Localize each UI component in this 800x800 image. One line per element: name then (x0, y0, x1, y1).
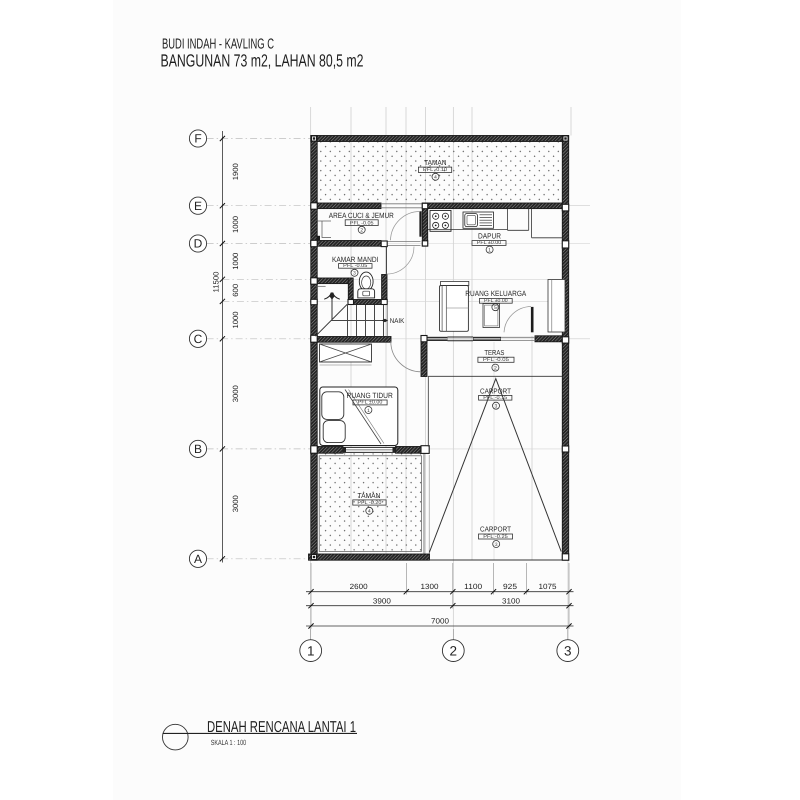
svg-text:RUANG KELUARGA: RUANG KELUARGA (465, 289, 527, 298)
svg-text:PFL ±0.00: PFL ±0.00 (484, 298, 508, 304)
svg-text:11500: 11500 (211, 272, 220, 293)
svg-text:C: C (194, 332, 203, 346)
svg-text:E: E (194, 199, 202, 213)
svg-text:3: 3 (564, 643, 572, 658)
svg-text:TERAS: TERAS (484, 348, 504, 357)
svg-text:PFL -0.10: PFL -0.10 (423, 167, 447, 173)
svg-text:A: A (194, 552, 202, 566)
svg-text:B: B (194, 442, 202, 456)
svg-text:PFL -0.05: PFL -0.05 (343, 263, 367, 269)
svg-text:3900: 3900 (373, 596, 391, 605)
svg-text:3: 3 (495, 542, 498, 548)
svg-text:PFL ±0.00: PFL ±0.00 (358, 400, 383, 406)
svg-text:1000: 1000 (231, 312, 240, 329)
svg-text:AREA CUCI & JEMUR: AREA CUCI & JEMUR (329, 211, 394, 220)
svg-text:600: 600 (231, 284, 240, 297)
svg-text:1900: 1900 (231, 163, 240, 180)
svg-text:3000: 3000 (231, 495, 240, 512)
svg-text:3: 3 (353, 271, 356, 277)
svg-text:2600: 2600 (350, 582, 368, 591)
svg-text:RUANG TIDUR: RUANG TIDUR (347, 391, 394, 400)
svg-text:925: 925 (503, 582, 517, 591)
svg-text:TAMAN: TAMAN (424, 158, 446, 167)
svg-text:3100: 3100 (502, 596, 520, 605)
svg-text:PFL ±0.00: PFL ±0.00 (477, 240, 502, 246)
svg-text:TAMAN: TAMAN (358, 491, 381, 500)
svg-text:2: 2 (494, 366, 497, 372)
svg-text:PFL -0.25: PFL -0.25 (483, 534, 508, 540)
svg-text:3: 3 (495, 404, 498, 410)
svg-text:1: 1 (307, 643, 315, 658)
svg-text:PFL -0.05: PFL -0.05 (350, 220, 374, 226)
svg-text:3000: 3000 (231, 385, 240, 402)
svg-text:1100: 1100 (464, 582, 482, 591)
svg-text:PFL -0.20: PFL -0.20 (357, 500, 381, 506)
svg-text:2: 2 (450, 643, 458, 658)
svg-text:1000: 1000 (231, 253, 240, 270)
svg-text:D: D (194, 237, 203, 251)
svg-text:BANGUNAN 73 m2, LAHAN 80,5 m2: BANGUNAN 73 m2, LAHAN 80,5 m2 (161, 50, 364, 70)
svg-text:1: 1 (488, 248, 491, 254)
svg-text:7000: 7000 (431, 617, 449, 626)
svg-text:4: 4 (368, 509, 371, 515)
svg-text:1300: 1300 (421, 582, 439, 591)
svg-text:1: 1 (367, 408, 370, 414)
svg-text:PFL -0.05: PFL -0.05 (483, 357, 509, 363)
svg-text:SKALA 1 : 100: SKALA 1 : 100 (211, 738, 247, 747)
svg-text:1075: 1075 (539, 582, 557, 591)
svg-text:NAIK: NAIK (390, 318, 405, 325)
svg-text:4: 4 (434, 175, 437, 181)
svg-text:PFL -0.15: PFL -0.15 (483, 395, 507, 401)
svg-text:5: 5 (494, 305, 497, 311)
svg-text:CARPORT: CARPORT (480, 525, 512, 534)
svg-text:2: 2 (360, 228, 363, 234)
svg-text:1000: 1000 (231, 216, 240, 233)
svg-text:DAPUR: DAPUR (478, 232, 501, 241)
svg-text:F: F (194, 132, 201, 146)
